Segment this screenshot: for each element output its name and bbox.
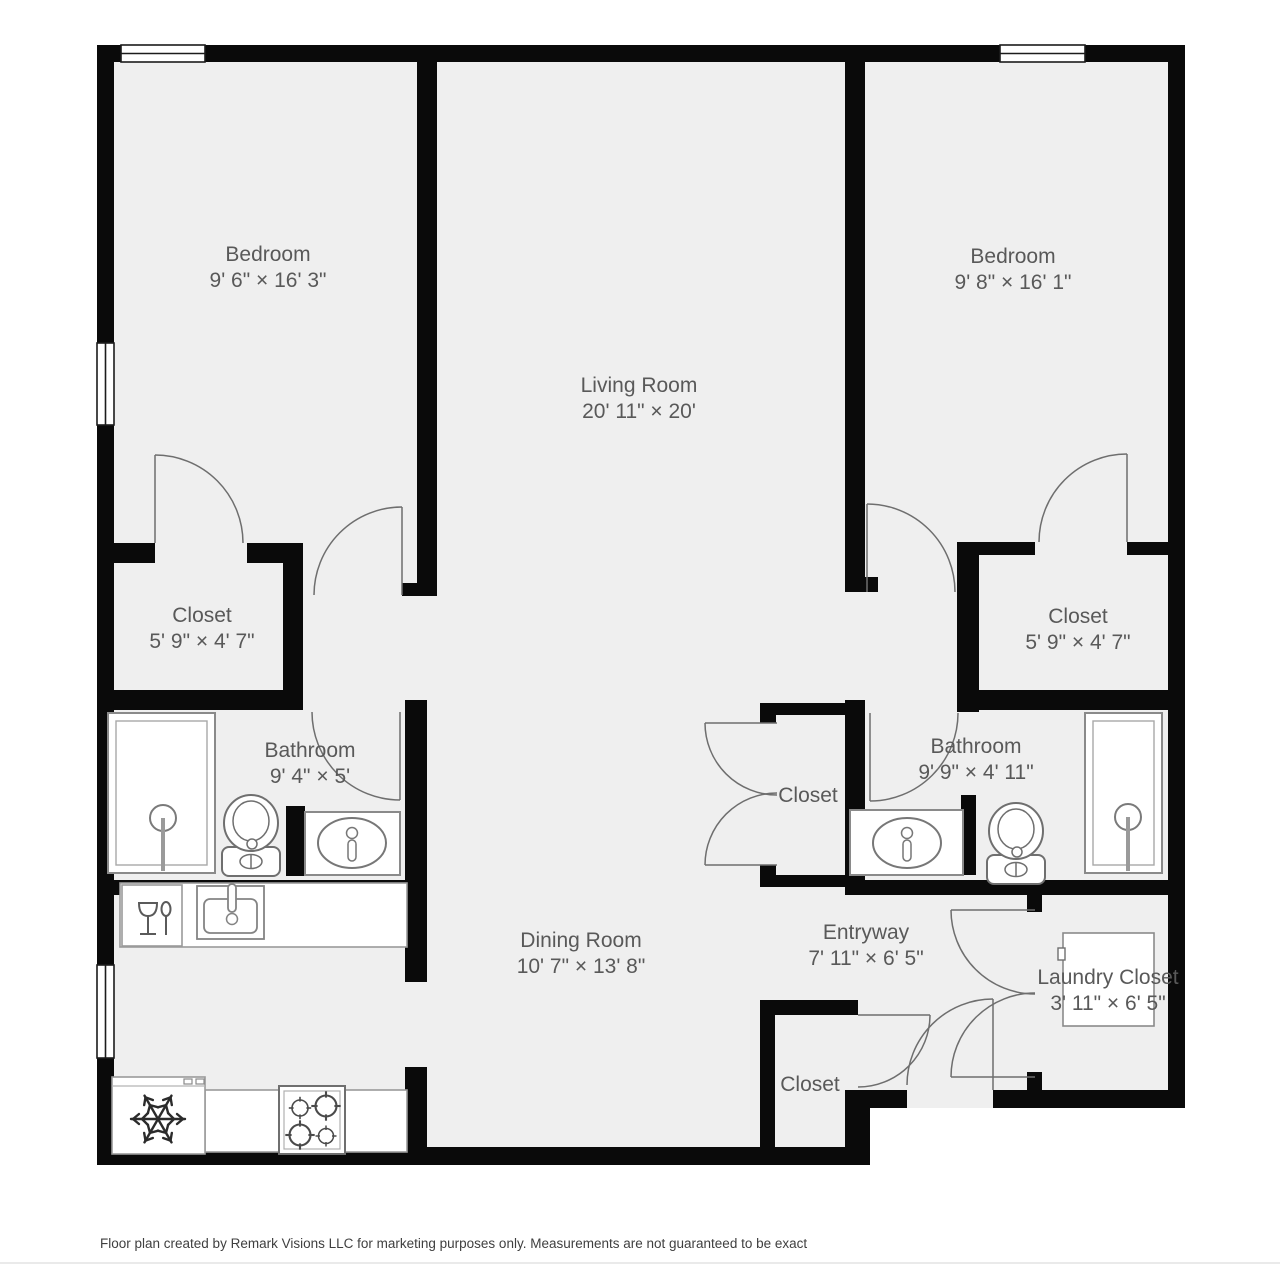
room-label-laundry-closet: Laundry Closet 3' 11" × 6' 5" [1037,965,1178,1017]
floor-plan-canvas: Bedroom 9' 6" × 16' 3" Living Room 20' 1… [0,0,1280,1280]
stove [279,1086,345,1154]
room-label-bedroom-left: Bedroom 9' 6" × 16' 3" [210,242,327,294]
disclaimer-text: Floor plan created by Remark Visions LLC… [100,1236,807,1251]
dishwasher [122,885,182,946]
room-name: Bathroom [918,734,1033,760]
window-left-kitchen [97,965,114,1058]
room-label-closet-left: Closet 5' 9" × 4' 7" [149,603,254,655]
shower-left [108,713,215,873]
room-name: Closet [778,783,838,809]
room-name: Entryway [808,920,923,946]
room-label-closet-right: Closet 5' 9" × 4' 7" [1025,604,1130,656]
room-label-bathroom-right: Bathroom 9' 9" × 4' 11" [918,734,1033,786]
room-label-living-room: Living Room 20' 11" × 20' [581,373,698,425]
refrigerator [112,1077,205,1154]
room-dims: 9' 9" × 4' 11" [918,760,1033,786]
kitchen-sink [197,884,264,939]
room-label-closet-bottom: Closet [780,1072,840,1098]
room-name: Closet [1025,604,1130,630]
room-dims: 5' 9" × 4' 7" [1025,630,1130,656]
room-name: Closet [149,603,254,629]
room-label-bedroom-right: Bedroom 9' 8" × 16' 1" [955,244,1072,296]
room-dims: 7' 11" × 6' 5" [808,946,923,972]
room-dims: 10' 7" × 13' 8" [517,954,646,980]
room-dims: 9' 6" × 16' 3" [210,268,327,294]
window-top-left [121,45,205,62]
room-label-entryway: Entryway 7' 11" × 6' 5" [808,920,923,972]
room-dims: 9' 4" × 5' [264,764,355,790]
vanity-left [305,812,400,875]
window-top-right [1000,45,1085,62]
room-name: Bathroom [264,738,355,764]
room-name: Dining Room [517,928,646,954]
room-name: Closet [780,1072,840,1098]
room-label-bathroom-left: Bathroom 9' 4" × 5' [264,738,355,790]
window-left-bedroom [97,343,114,425]
room-name: Living Room [581,373,698,399]
room-label-dining-room: Dining Room 10' 7" × 13' 8" [517,928,646,980]
shower-right [1085,713,1162,873]
room-dims: 20' 11" × 20' [581,399,698,425]
toilet-right [987,803,1045,884]
toilet-left [222,795,280,876]
room-dims: 3' 11" × 6' 5" [1037,991,1178,1017]
room-name: Bedroom [955,244,1072,270]
room-dims: 9' 8" × 16' 1" [955,270,1072,296]
room-dims: 5' 9" × 4' 7" [149,629,254,655]
floor-area [97,45,1185,1165]
room-name: Bedroom [210,242,327,268]
room-label-closet-center: Closet [778,783,838,809]
bottom-divider [0,1262,1280,1264]
vanity-right [850,810,963,875]
room-name: Laundry Closet [1037,965,1178,991]
